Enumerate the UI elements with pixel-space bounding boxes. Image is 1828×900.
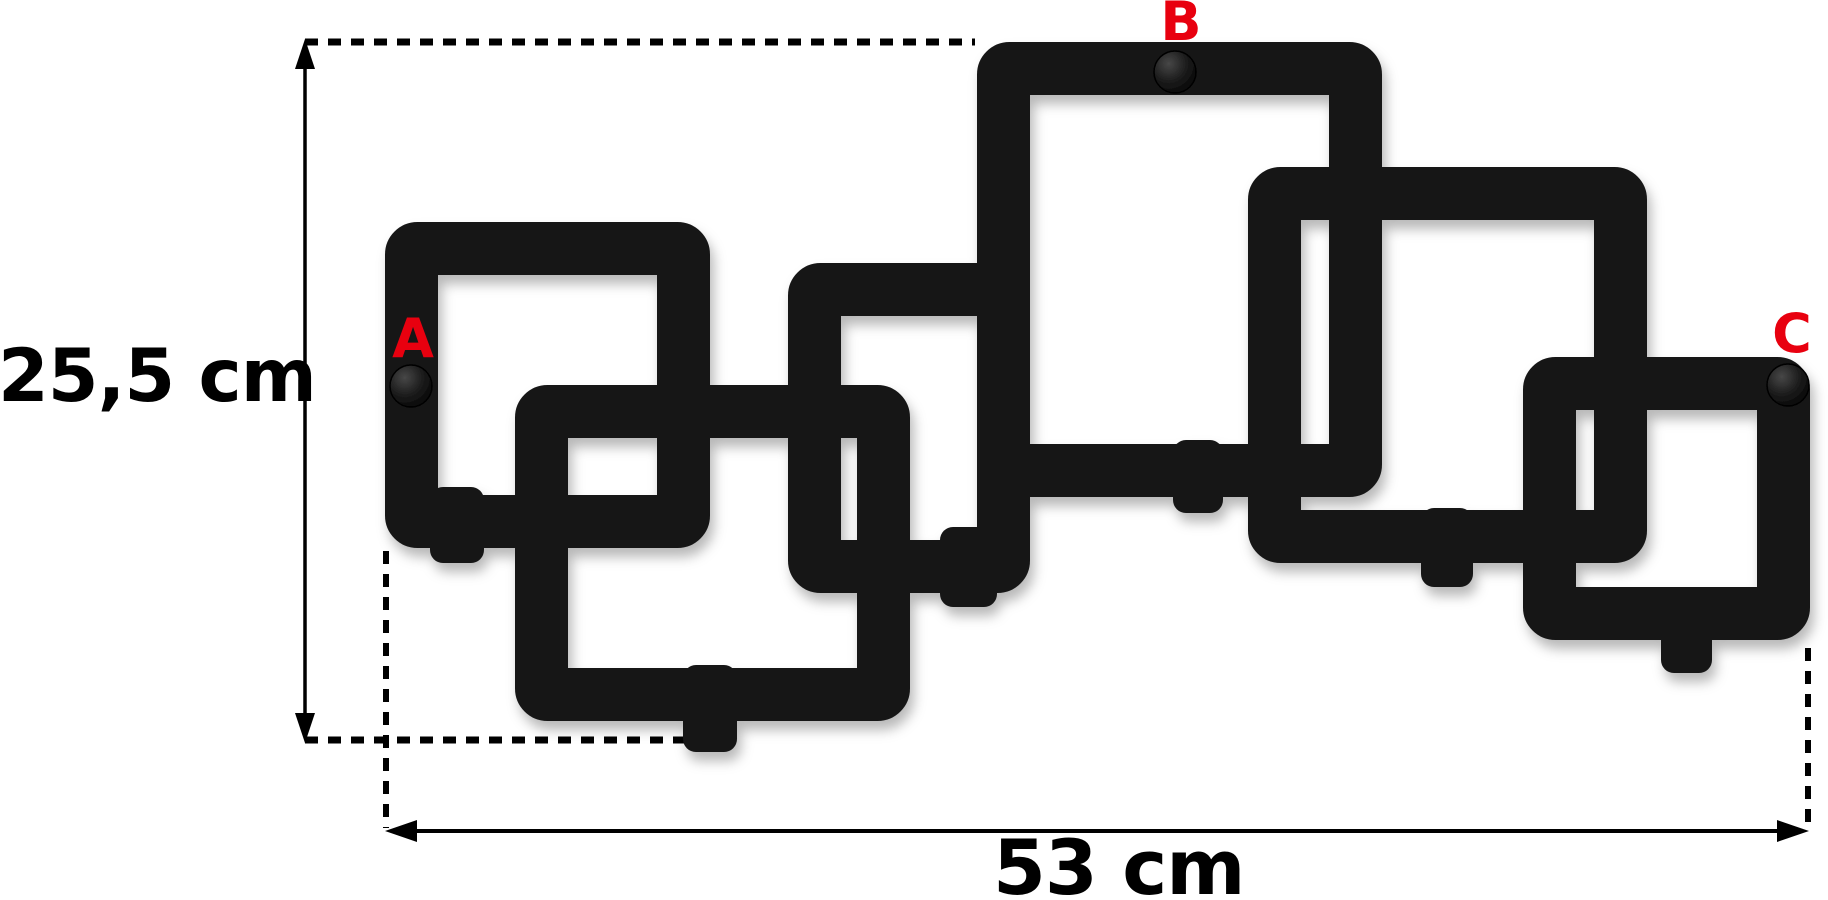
coat-hook [940,527,997,607]
coat-hook [1661,593,1712,673]
square-frame [1004,69,1356,471]
mount-point-label-c: C [1772,307,1812,361]
mounting-screw [1767,364,1809,406]
width-dimension-label: 53 cm [993,830,1244,900]
coat-rack [390,51,1809,752]
coat-hook [683,665,737,752]
square-frame [1550,384,1784,614]
mounting-screw [1154,51,1196,93]
mount-point-label-b: B [1160,0,1201,49]
coat-hook [1173,440,1223,513]
product-dimension-diagram: 25,5 cm 53 cm ABC [0,0,1828,900]
height-dimension-label: 25,5 cm [0,340,316,413]
arrowhead-left [385,820,417,842]
mounting-screw [390,365,432,407]
coat-rack-illustration [0,0,1828,900]
coat-hook [430,487,484,563]
coat-hook [1421,508,1473,587]
mount-point-label-a: A [392,312,434,366]
arrowhead-right [1777,820,1809,842]
